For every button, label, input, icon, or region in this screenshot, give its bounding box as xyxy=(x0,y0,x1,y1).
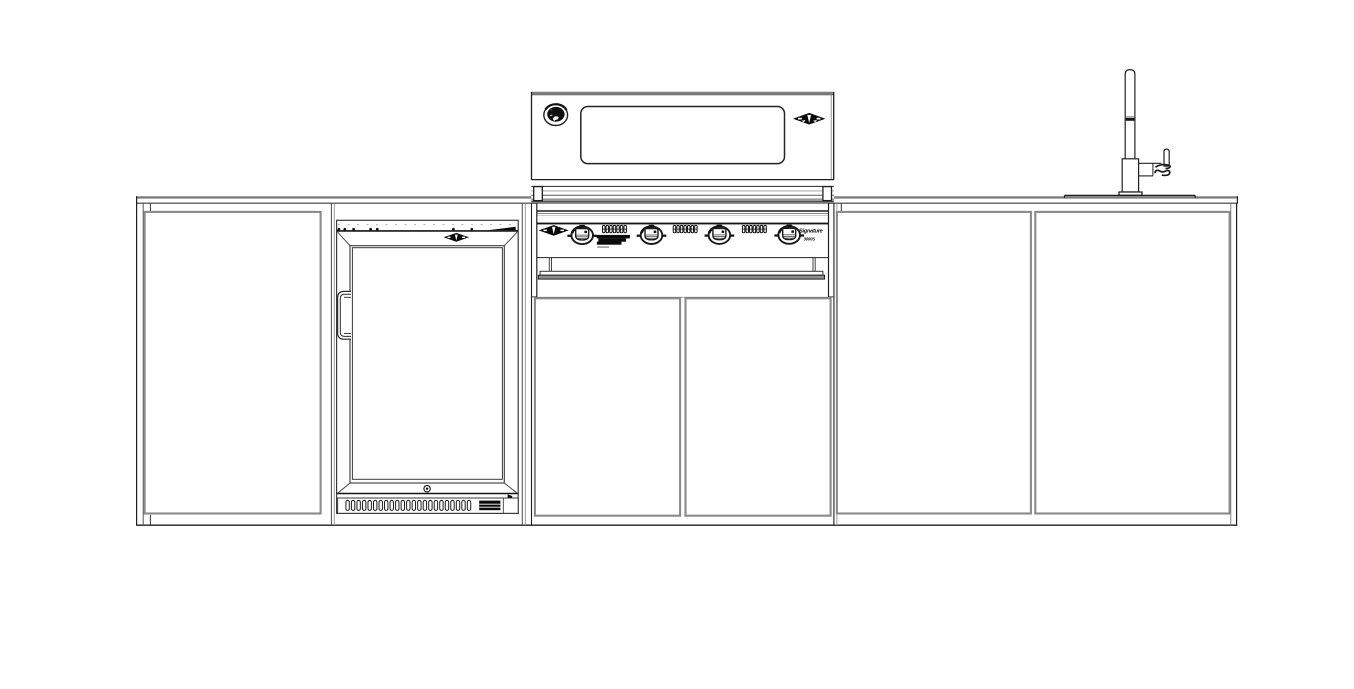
svg-text:Signature: Signature xyxy=(799,229,823,235)
svg-text:3000S: 3000S xyxy=(804,237,816,242)
